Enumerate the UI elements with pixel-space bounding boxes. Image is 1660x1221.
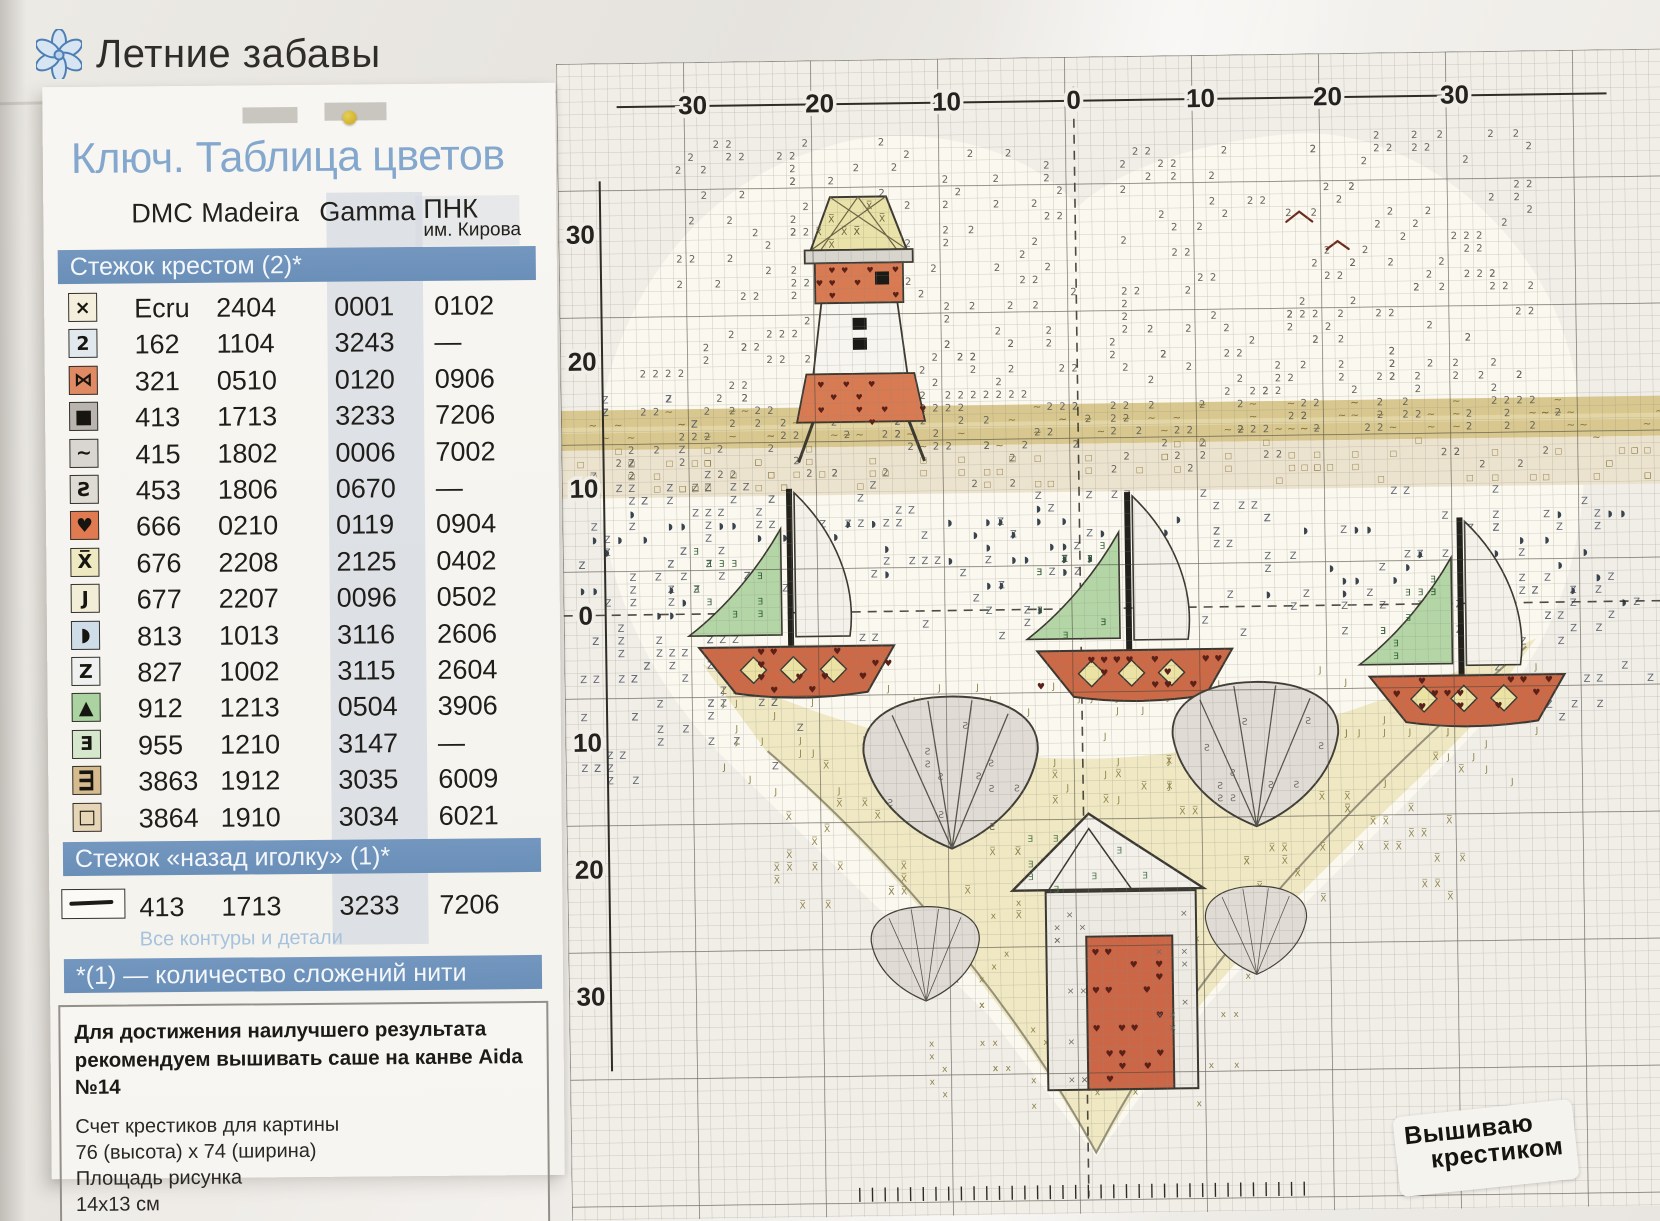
cell-dmc: 827 <box>137 657 182 688</box>
scan-edge-shadow <box>0 0 26 1221</box>
cell-pnk: 6009 <box>438 763 498 795</box>
info-line2: 76 (высота) x 74 (ширина) <box>75 1136 533 1166</box>
stitch-symbol-3864: □ <box>72 802 101 831</box>
info-bold-line2: рекомендуем вышивать саше на канве Aida … <box>75 1043 533 1102</box>
cell-dmc: 321 <box>135 366 180 397</box>
cell-gamma: 0119 <box>336 510 394 542</box>
cell-dmc: 676 <box>136 548 181 579</box>
stitch-symbol-321: ⋈ <box>69 366 98 395</box>
cell-madeira: 1002 <box>219 656 279 688</box>
key-table-row: ⋈321051001200906 <box>45 359 545 400</box>
cell-gamma: 0096 <box>337 582 397 614</box>
cell-dmc: 3864 <box>138 803 198 835</box>
key-table-row: Ш3863191230356009 <box>48 759 548 800</box>
cell-dmc: 813 <box>137 621 182 652</box>
cell-madeira: 0510 <box>217 365 277 397</box>
key-table-row: ◗813101331162606 <box>47 613 547 654</box>
cell-gamma: 2125 <box>336 546 396 578</box>
backstitch-pnk: 7206 <box>439 889 499 921</box>
cell-gamma: 3034 <box>338 801 398 833</box>
cell-gamma: 0001 <box>334 291 394 323</box>
section-bar-footnote: *(1) — количество сложений нити <box>64 955 542 993</box>
paper-tab <box>242 107 297 123</box>
cell-madeira: 2404 <box>216 292 276 324</box>
stitch-symbol-453: Ƨ <box>70 475 99 504</box>
stitch-symbol-827: Z <box>71 657 100 686</box>
cell-pnk: — <box>438 727 465 758</box>
column-header-madeira: Madeira <box>201 197 299 229</box>
flower-icon <box>36 29 82 79</box>
cell-dmc: 3863 <box>138 766 198 798</box>
svg-text:10: 10 <box>573 727 602 757</box>
cell-dmc: Ecru <box>134 293 190 324</box>
color-key-card: Ключ. Таблица цветов DMC Madeira Gamma П… <box>42 83 565 1179</box>
svg-text:0: 0 <box>1066 85 1081 115</box>
cell-dmc: 453 <box>136 475 181 506</box>
stitch-symbol-955: Ǝ <box>72 730 101 759</box>
cell-madeira: 1806 <box>218 474 278 506</box>
column-header-gamma: Gamma <box>319 196 415 228</box>
cell-dmc: 677 <box>137 584 182 615</box>
svg-text:10: 10 <box>1186 83 1215 113</box>
key-table-row: ♥666021001190904 <box>46 504 546 545</box>
page-title: Летние забавы <box>96 32 381 77</box>
key-table-row: X̅676220821250402 <box>46 541 546 582</box>
key-table-row: 216211043243— <box>44 322 544 363</box>
info-line3: Площадь рисунка <box>76 1162 534 1192</box>
cell-pnk: 7002 <box>435 436 495 468</box>
cell-pnk: 0402 <box>436 545 496 577</box>
cell-gamma: 3233 <box>335 400 395 432</box>
stitch-symbol-813: ◗ <box>71 620 100 649</box>
key-table-row: ■413171332337206 <box>45 395 545 436</box>
info-line4: 14x13 см <box>76 1188 534 1218</box>
key-table-title: Ключ. Таблица цветов <box>71 131 505 184</box>
cell-pnk: 0906 <box>435 363 495 395</box>
svg-text:30: 30 <box>566 219 595 249</box>
cell-madeira: 0210 <box>218 511 278 543</box>
stitch-symbol-676: X̅ <box>70 548 99 577</box>
svg-text:30: 30 <box>1440 79 1469 109</box>
svg-text:20: 20 <box>805 88 834 118</box>
stitch-symbol-3863: Ш <box>72 766 101 795</box>
stitch-symbol-413: ■ <box>69 402 98 431</box>
backstitch-note: Все контуры и детали <box>140 927 343 952</box>
svg-text:0: 0 <box>578 601 593 631</box>
svg-text:20: 20 <box>567 346 596 376</box>
key-table-row: Z827100231152604 <box>47 650 547 691</box>
key-table-row: ×Ecru240400010102 <box>44 286 544 327</box>
page-header: Летние забавы <box>36 26 381 82</box>
backstitch-dmc: 413 <box>139 892 184 923</box>
key-table: ×Ecru240400010102216211043243—⋈321051001… <box>44 286 549 838</box>
cell-pnk: 2604 <box>437 654 497 686</box>
scanned-magazine-page: 2222222222222222222222222222222222222222… <box>0 0 1660 1221</box>
cell-pnk: 6021 <box>438 800 498 832</box>
column-header-pnk-sub: им. Кирова <box>423 219 521 242</box>
stitch-symbol-415: ~ <box>69 438 98 467</box>
cell-dmc: 162 <box>134 329 179 360</box>
cell-pnk: 2606 <box>437 618 497 650</box>
cell-pnk: — <box>434 327 461 358</box>
cell-dmc: 912 <box>138 693 183 724</box>
key-table-row: J677220700960502 <box>47 577 547 618</box>
cell-dmc: 415 <box>135 439 180 470</box>
cell-pnk: 0102 <box>434 290 494 322</box>
key-table-row: ▲912121305043906 <box>48 686 548 727</box>
cell-gamma: 0504 <box>338 692 398 724</box>
cell-pnk: — <box>436 473 463 504</box>
svg-text:20: 20 <box>575 854 604 884</box>
info-bold-line1: Для достижения наилучшего результата <box>74 1015 532 1047</box>
svg-text:30: 30 <box>678 90 707 120</box>
cell-gamma: 3115 <box>337 655 395 687</box>
stitch-symbol-162: 2 <box>68 329 97 358</box>
key-table-row: ~415180200067002 <box>45 431 545 472</box>
info-box: Для достижения наилучшего результата рек… <box>58 1001 550 1221</box>
svg-text:30: 30 <box>576 981 605 1011</box>
cell-pnk: 7206 <box>435 400 495 432</box>
cross-stitch-chart: 2222222222222222222222222222222222222222… <box>556 49 1660 1221</box>
stitch-symbol-912: ▲ <box>72 693 101 722</box>
stitch-symbol-Ecru: × <box>68 293 97 322</box>
cell-madeira: 1013 <box>219 620 279 652</box>
section-bar-backstitch: Стежок «назад иголку» (1)* <box>63 838 541 876</box>
key-table-row: Ǝ95512103147— <box>48 723 548 764</box>
cell-gamma: 3035 <box>338 764 398 796</box>
svg-text:10: 10 <box>932 86 961 116</box>
info-line1: Счет крестиков для картины <box>75 1110 533 1140</box>
cell-gamma: 0670 <box>336 473 396 505</box>
cell-pnk: 0502 <box>437 582 497 614</box>
cell-madeira: 1910 <box>220 802 280 834</box>
cell-madeira: 1210 <box>220 729 280 761</box>
chart-svg: 2222222222222222222222222222222222222222… <box>556 49 1660 1221</box>
key-table-row: □3864191030346021 <box>48 795 548 836</box>
svg-text:10: 10 <box>569 473 598 503</box>
backstitch-madeira: 1713 <box>221 891 281 923</box>
stitch-symbol-666: ♥ <box>70 511 99 540</box>
cell-gamma: 3116 <box>337 619 395 651</box>
cell-pnk: 0904 <box>436 509 496 541</box>
cell-pnk: 3906 <box>438 691 498 723</box>
cell-madeira: 1713 <box>217 401 277 433</box>
section-bar-cross-stitch: Стежок крестом (2)* <box>58 246 536 284</box>
key-table-row: Ƨ45318060670— <box>46 468 546 509</box>
cell-gamma: 0006 <box>335 437 395 469</box>
cell-madeira: 2207 <box>219 583 279 615</box>
backstitch-symbol <box>61 889 125 920</box>
cell-madeira: 1213 <box>220 693 280 725</box>
svg-text:20: 20 <box>1313 81 1342 111</box>
cell-gamma: 0120 <box>335 364 395 396</box>
stitch-symbol-677: J <box>71 584 100 613</box>
cell-dmc: 955 <box>138 730 183 761</box>
backstitch-row: 413 1713 3233 7206 <box>49 879 549 929</box>
cell-madeira: 1104 <box>216 329 274 361</box>
cell-madeira: 1802 <box>217 438 277 470</box>
cell-gamma: 3243 <box>334 328 394 360</box>
grid-major <box>556 49 1660 1221</box>
backstitch-gamma: 3233 <box>339 890 399 922</box>
pin-dot <box>342 111 356 125</box>
column-header-dmc: DMC <box>131 198 193 230</box>
cell-dmc: 413 <box>135 402 180 433</box>
cell-madeira: 2208 <box>218 547 278 579</box>
cell-madeira: 1912 <box>220 765 280 797</box>
cell-gamma: 3147 <box>338 728 398 760</box>
cell-dmc: 666 <box>136 511 181 542</box>
